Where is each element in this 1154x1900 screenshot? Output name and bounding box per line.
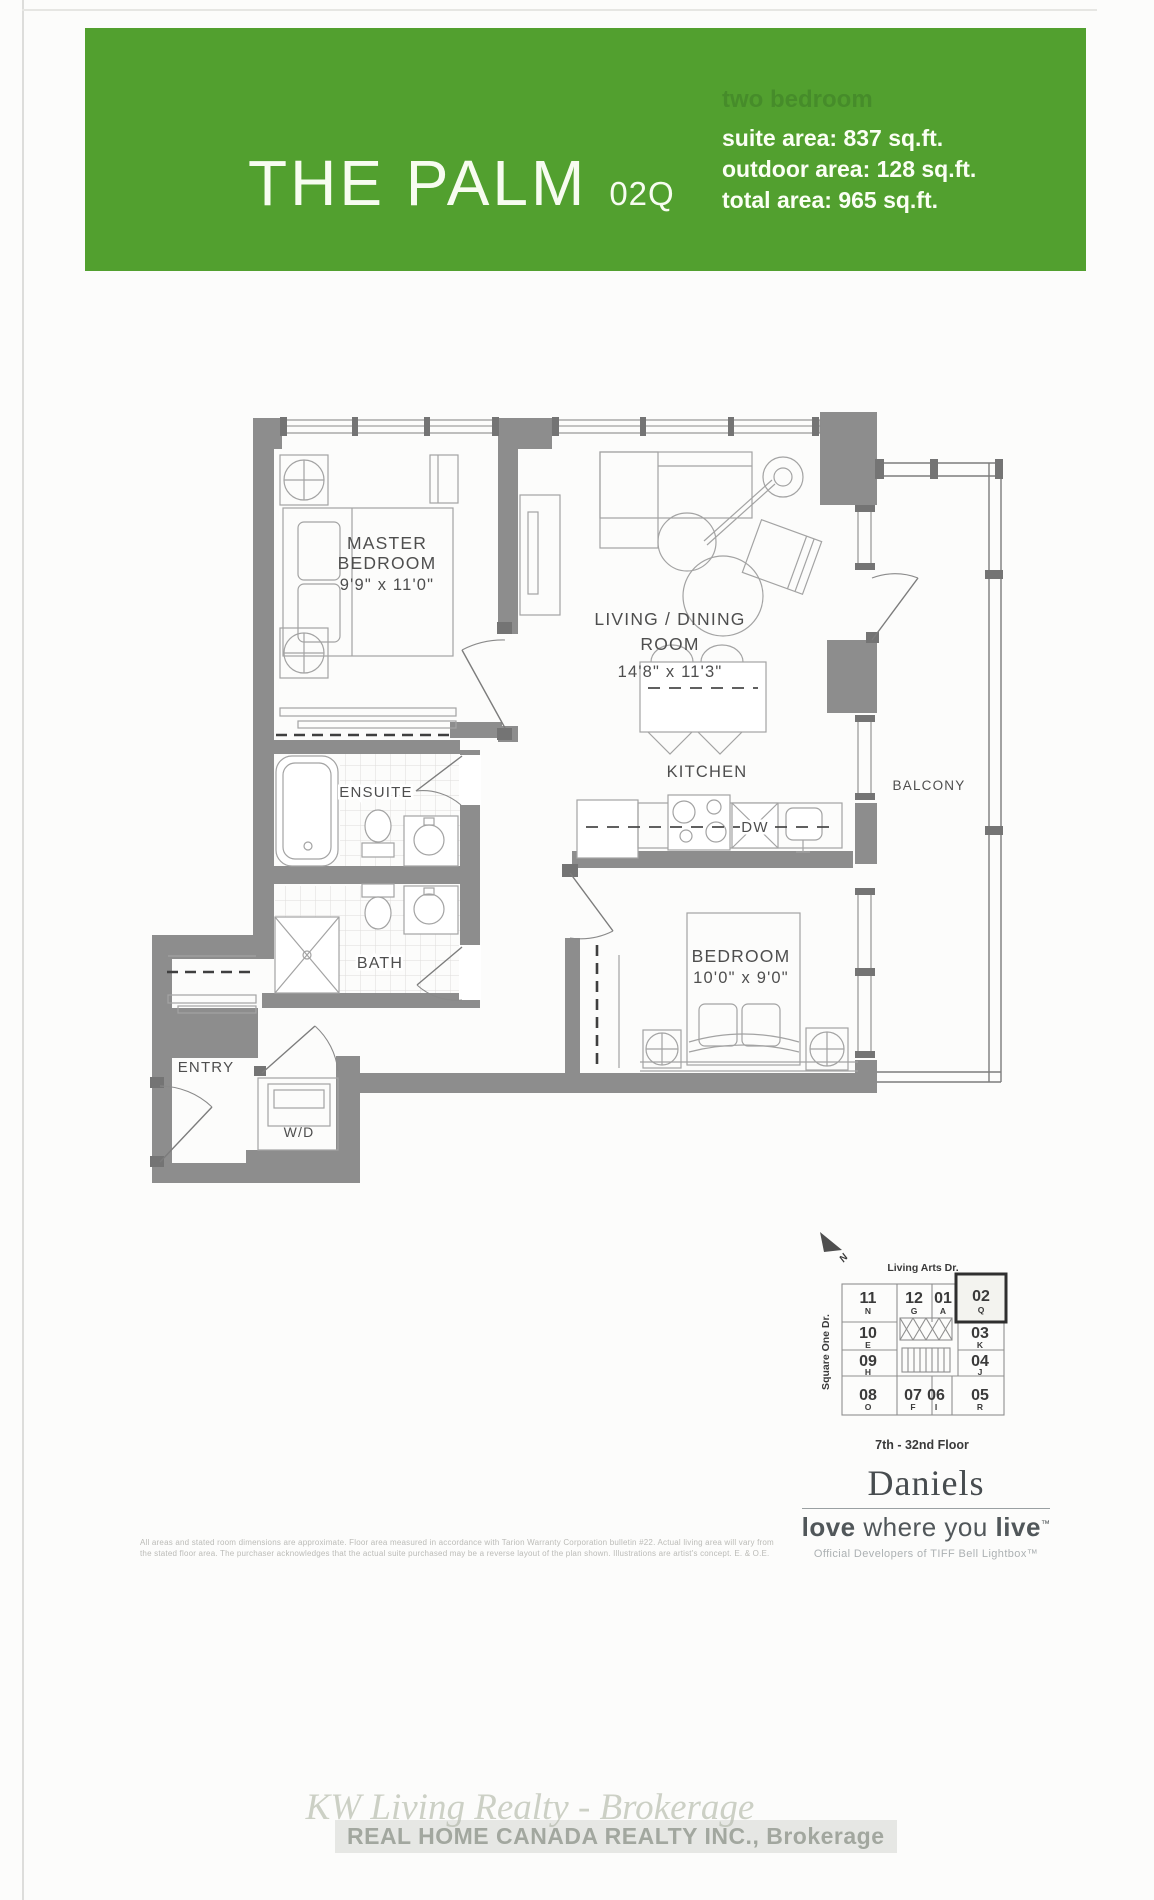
keyplan-unit-10-letter: E <box>865 1340 871 1350</box>
keyplan-unit-05-letter: R <box>977 1402 983 1412</box>
bedroom2-label: BEDROOM <box>692 946 791 966</box>
master-bedroom-dims: 9'9" x 11'0" <box>340 576 435 594</box>
living-dining-furniture <box>520 452 822 754</box>
kitchen-fixtures <box>577 795 842 858</box>
balcony-rail <box>875 459 1003 1082</box>
daniels-logo: Daniels <box>795 1462 1057 1504</box>
street-top-label: Living Arts Dr. <box>887 1262 958 1274</box>
balcony-label: BALCONY <box>893 778 966 793</box>
daniels-tagline: love where you live™ <box>795 1512 1057 1543</box>
keyplan-unit-12-letter: G <box>911 1306 918 1316</box>
key-plan: N Living Arts Dr. Square One Dr. <box>820 1232 1006 1452</box>
disclaimer-text: All areas and stated room dimensions are… <box>140 1537 795 1559</box>
keyplan-unit-01-letter: A <box>940 1306 946 1316</box>
master-bedroom-label-1: MASTER <box>347 533 427 553</box>
bedroom2-dims: 10'0" x 9'0" <box>693 969 789 987</box>
keyplan-unit-04-letter: J <box>978 1367 983 1377</box>
ensuite-toilet <box>365 810 391 842</box>
wd-label: W/D <box>284 1124 315 1140</box>
keyplan-unit-11: 11 <box>860 1290 877 1307</box>
tagline-tm: ™ <box>1041 1518 1051 1528</box>
disclaimer-line-2: the stated floor area. The purchaser ack… <box>140 1548 795 1559</box>
keyplan-unit-09-letter: H <box>865 1367 871 1377</box>
bath-toilet <box>365 897 391 929</box>
floorplan-page: THE PALM 02Q two bedroom suite area: 837… <box>0 0 1154 1900</box>
living-dining-label-2: ROOM <box>640 634 699 654</box>
keyplan-unit-06-letter: I <box>935 1402 937 1412</box>
bedroom2-furniture <box>597 913 858 1071</box>
north-arrow <box>820 1232 842 1252</box>
ensuite-label: ENSUITE <box>339 784 412 801</box>
bath-label: BATH <box>357 955 403 972</box>
dishwasher-label: DW <box>741 819 768 836</box>
entry-label: ENTRY <box>178 1059 235 1076</box>
tagline-love: love <box>802 1512 856 1542</box>
watermark-brokerage: REAL HOME CANADA REALTY INC., Brokerage <box>335 1820 897 1853</box>
developer-branding: Daniels love where you live™ Official De… <box>795 1462 1057 1560</box>
tagline-live: live <box>996 1512 1041 1542</box>
kitchen-label: KITCHEN <box>667 763 748 781</box>
bath-sink <box>404 886 458 934</box>
keyplan-unit-11-letter: N <box>865 1306 871 1316</box>
keyplan-unit-02: 02 <box>972 1288 990 1305</box>
keyplan-unit-07-letter: F <box>910 1402 915 1412</box>
kitchen-sink <box>786 808 822 840</box>
north-label: N <box>838 1252 852 1265</box>
keyplan-unit-01: 01 <box>934 1290 952 1307</box>
keyplan-unit-03-letter: K <box>977 1340 984 1350</box>
living-dining-dims: 14'8" x 11'3" <box>618 663 723 681</box>
keyplan-unit-08-letter: O <box>865 1402 872 1412</box>
floor-range-label: 7th - 32nd Floor <box>875 1438 969 1452</box>
logo-divider <box>802 1508 1050 1509</box>
keyplan-unit-12: 12 <box>905 1290 923 1307</box>
disclaimer-line-1: All areas and stated room dimensions are… <box>140 1537 795 1548</box>
master-bedroom-label-2: BEDROOM <box>338 553 437 573</box>
ensuite-sink <box>404 816 458 866</box>
master-bedroom-furniture <box>276 455 458 735</box>
street-left-label: Square One Dr. <box>820 1314 832 1390</box>
keyplan-unit-02-letter: Q <box>978 1305 985 1315</box>
living-dining-label-1: LIVING / DINING <box>594 609 745 629</box>
tiff-subtitle: Official Developers of TIFF Bell Lightbo… <box>795 1548 1057 1560</box>
floor-plan-drawing: MASTER BEDROOM 9'9" x 11'0" LIVING / DIN… <box>0 0 1154 1900</box>
tagline-mid: where you <box>856 1512 996 1542</box>
